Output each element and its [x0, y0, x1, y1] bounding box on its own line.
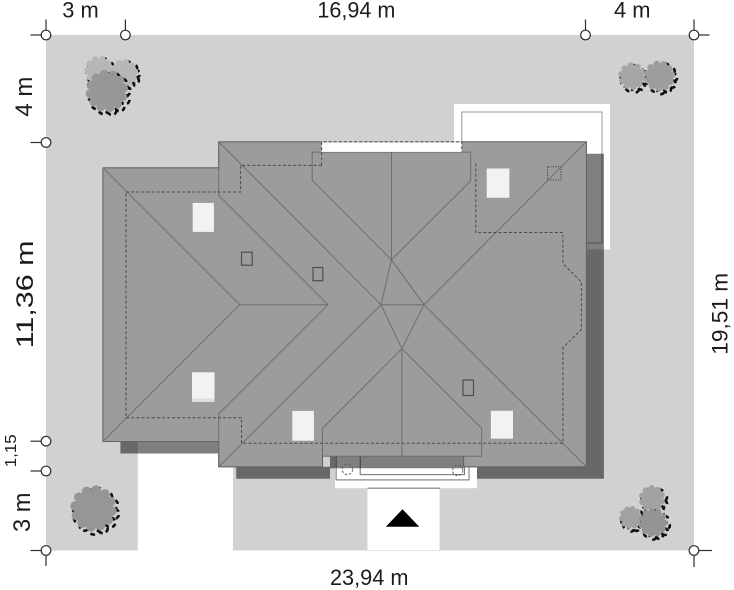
- svg-text:11,36 m: 11,36 m: [12, 240, 39, 348]
- svg-text:3 m: 3 m: [62, 0, 99, 23]
- svg-text:23,94 m: 23,94 m: [330, 565, 409, 590]
- svg-text:19,51 m: 19,51 m: [708, 273, 733, 355]
- svg-text:16,94 m: 16,94 m: [317, 0, 395, 23]
- svg-text:4 m: 4 m: [614, 0, 651, 22]
- svg-text:4 m: 4 m: [11, 77, 38, 117]
- svg-text:1,15: 1,15: [3, 434, 20, 467]
- svg-text:3 m: 3 m: [9, 493, 36, 533]
